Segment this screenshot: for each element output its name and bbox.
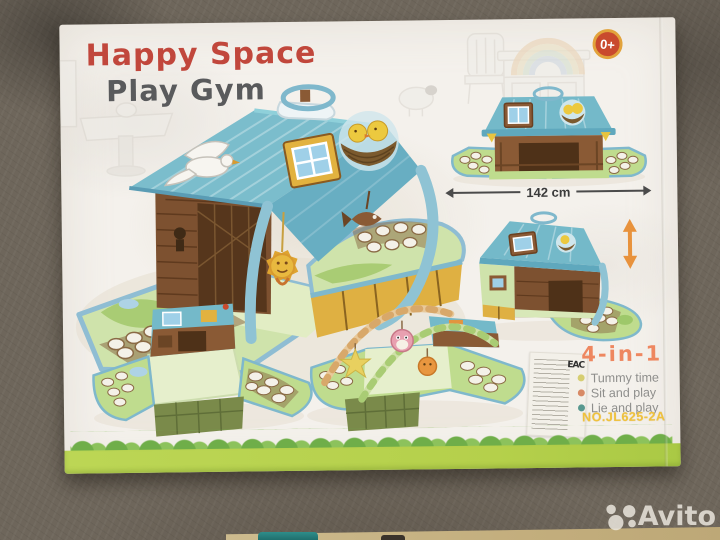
dimension-arrow: 142 cm: [447, 182, 649, 202]
height-arrow-icon: [623, 219, 638, 269]
bullet-icon: [578, 374, 585, 381]
feature-list: Tummy time Sit and play Lie and play: [578, 369, 660, 415]
flat-mat-image: [83, 298, 315, 441]
roof-window: [283, 133, 341, 187]
roof-window: [504, 103, 532, 127]
age-badge: 0+: [591, 28, 624, 61]
hanging-owl-toy: [391, 320, 413, 351]
dimension-arrow-right: [576, 190, 649, 193]
dimension-arrow-left: [447, 191, 520, 194]
model-number: NO.JL625-2A: [582, 409, 665, 424]
rainbow: [514, 40, 582, 75]
brand-title: Happy Space: [85, 36, 316, 74]
carry-handle: [532, 213, 556, 223]
age-badge-label: 0+: [599, 36, 615, 52]
multi-use-heading: 4-in-1: [581, 341, 662, 366]
product-box: Happy Space Play Gym 0+: [59, 17, 680, 473]
box-fold-crease: [659, 17, 667, 466]
dark-object: [381, 535, 405, 540]
avito-watermark: Avito: [594, 496, 716, 536]
feature-sit-and-play: Sit and play: [578, 384, 659, 400]
feature-tummy-time: Tummy time: [578, 369, 659, 385]
sticker-text-lines: [531, 359, 570, 430]
folded-house-image: [448, 84, 649, 191]
watermark-label: Avito: [638, 501, 716, 532]
bullet-icon: [578, 389, 585, 396]
avito-logo-icon: [594, 497, 638, 535]
teal-object: [258, 532, 318, 540]
roof-window: [509, 232, 537, 256]
dimension-label: 142 cm: [526, 184, 570, 200]
play-gym-image: [299, 285, 531, 438]
